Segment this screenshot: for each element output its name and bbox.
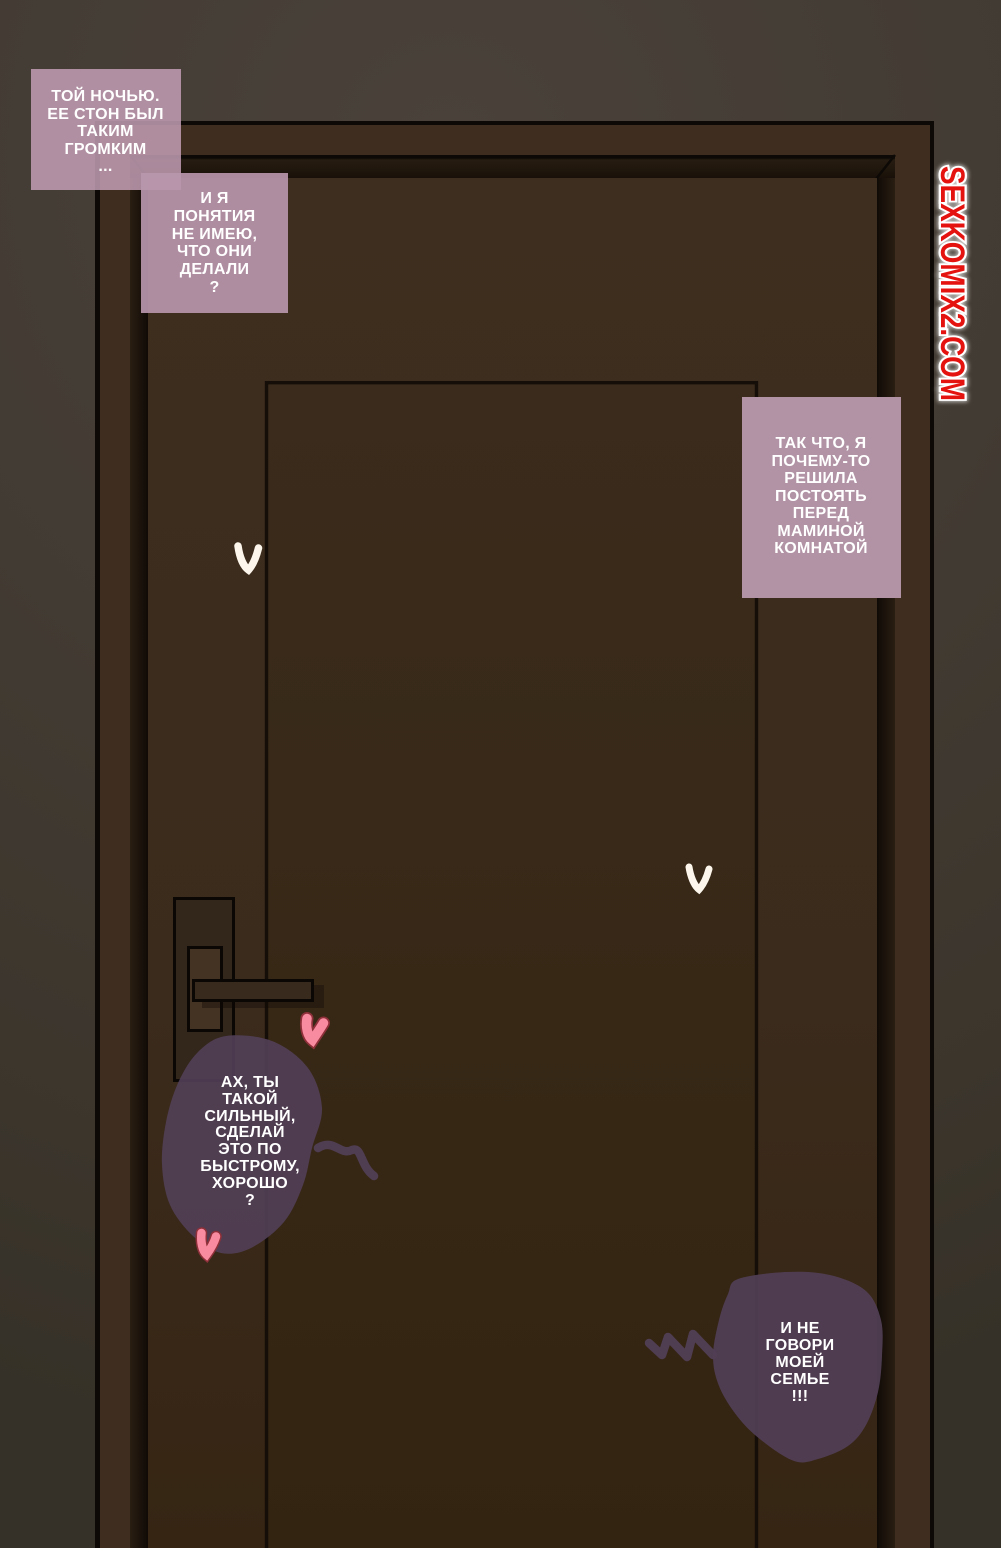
svg-text:SEXKOMIX2.COM: SEXKOMIX2.COM [933, 166, 971, 401]
